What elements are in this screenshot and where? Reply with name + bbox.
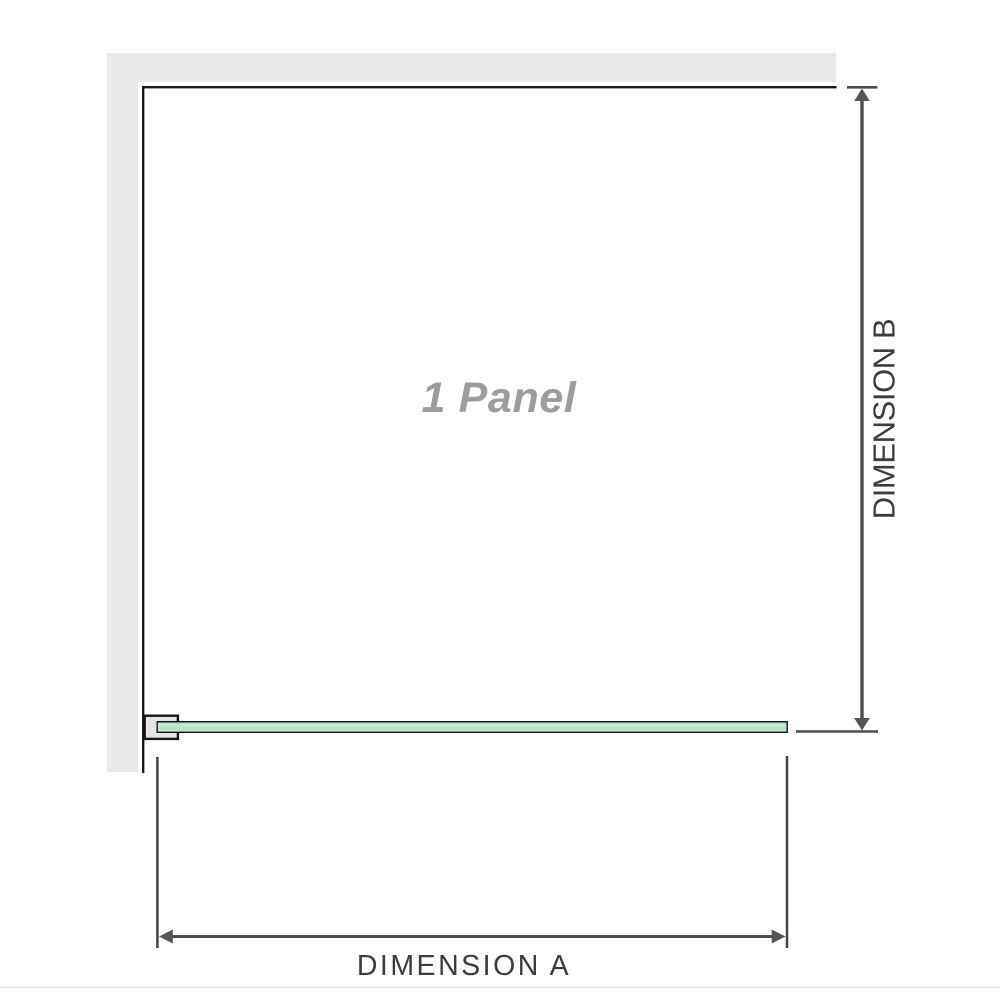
svg-text:DIMENSION B: DIMENSION B	[867, 319, 902, 520]
svg-text:1 Panel: 1 Panel	[422, 374, 577, 422]
svg-text:DIMENSION A: DIMENSION A	[357, 950, 571, 982]
